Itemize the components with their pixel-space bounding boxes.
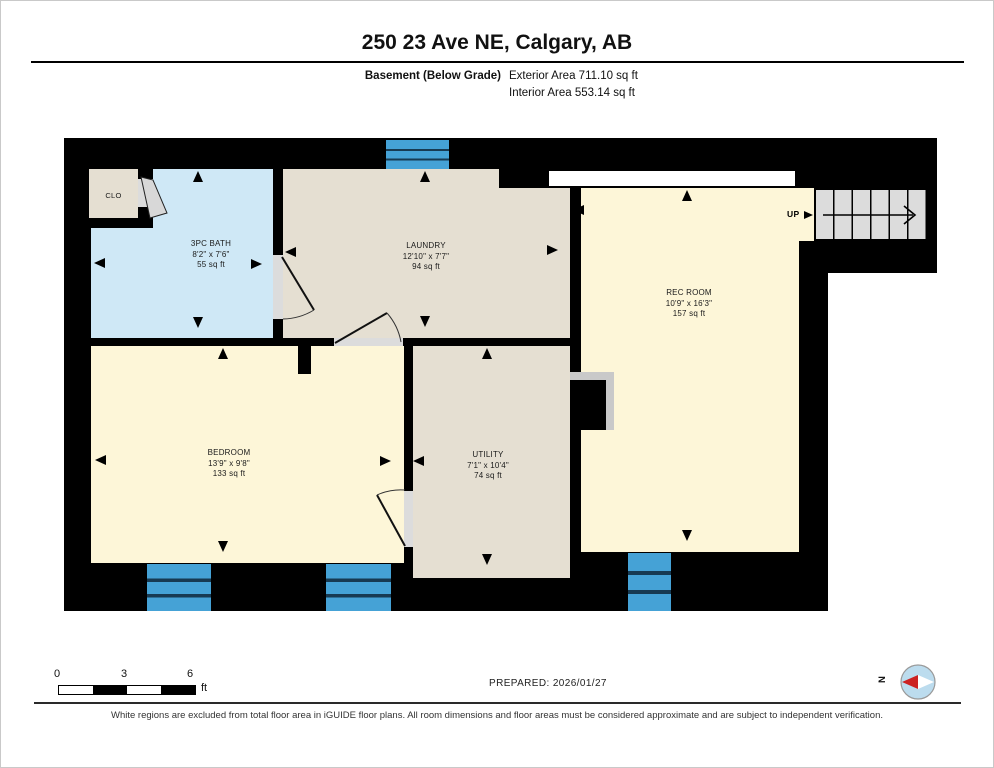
room-dims: 10'9" x 16'3": [629, 299, 749, 310]
dimension-arrow: [94, 258, 105, 268]
prepared-date: PREPARED: 2026/01/27: [489, 678, 607, 689]
room-area: 74 sq ft: [428, 471, 548, 482]
footer-disclaimer: White regions are excluded from total fl…: [1, 710, 993, 721]
scale-segment: [161, 686, 195, 694]
room-rec-upper: [581, 188, 814, 241]
chimney: [570, 380, 606, 430]
dimension-arrow: [682, 190, 692, 201]
dimension-arrow: [413, 456, 424, 466]
room-dims: 8'2" x 7'6": [151, 250, 271, 261]
dimension-arrow: [380, 456, 391, 466]
room-area: 157 sq ft: [629, 309, 749, 320]
dimension-arrow: [95, 455, 106, 465]
dimension-arrow: [218, 348, 228, 359]
room-dims: 7'1" x 10'4": [428, 461, 548, 472]
dimension-arrow: [682, 530, 692, 541]
room-name: REC ROOM: [629, 288, 749, 299]
door-gap-closet: [138, 179, 153, 207]
dimension-arrow: [193, 317, 203, 328]
scale-bar: [58, 685, 196, 695]
dimension-arrow: [573, 205, 584, 215]
laundry-wall-step: [499, 169, 547, 188]
room-name: BEDROOM: [169, 448, 289, 459]
compass-north-label: N: [877, 676, 888, 683]
scale-unit: ft: [201, 682, 207, 694]
dimension-arrow: [420, 171, 430, 182]
floorplan-page: 250 23 Ave NE, Calgary, AB Basement (Bel…: [0, 0, 994, 768]
room-dims: 13'9" x 9'8": [169, 459, 289, 470]
window: [628, 553, 671, 611]
excluded-white-region: [547, 169, 797, 188]
dimension-arrow: [420, 316, 430, 327]
door-gap-bath: [273, 255, 283, 319]
dimension-arrow: [482, 348, 492, 359]
window: [326, 564, 391, 611]
room-area: 94 sq ft: [366, 262, 486, 273]
scale-tick-6: 6: [187, 668, 193, 680]
scale-segment: [59, 686, 93, 694]
scale-segment: [93, 686, 127, 694]
window: [386, 140, 449, 169]
room-area: 133 sq ft: [169, 469, 289, 480]
room-label-rec-room: REC ROOM 10'9" x 16'3" 157 sq ft: [629, 288, 749, 320]
room-bath-upper: [153, 169, 273, 228]
dimension-arrow: [193, 171, 203, 182]
footer-divider: [34, 702, 961, 704]
dimension-arrow: [285, 247, 296, 257]
dimension-arrow: [547, 245, 558, 255]
stairs-up-label: UP: [787, 209, 799, 219]
room-area: 55 sq ft: [151, 260, 271, 271]
window: [147, 564, 211, 611]
bedroom-wall-stub: [298, 346, 311, 374]
room-name: UTILITY: [428, 450, 548, 461]
room-label-closet: CLO: [89, 191, 138, 200]
room-label-utility: UTILITY 7'1" x 10'4" 74 sq ft: [428, 450, 548, 482]
door-gap-bedroom: [404, 491, 413, 547]
room-dims: 12'10" x 7'7": [366, 252, 486, 263]
room-name: LAUNDRY: [366, 241, 486, 252]
room-label-bedroom: BEDROOM 13'9" x 9'8" 133 sq ft: [169, 448, 289, 480]
dimension-arrow: [482, 554, 492, 565]
scale-segment: [127, 686, 161, 694]
room-label-bath: 3PC BATH 8'2" x 7'6" 55 sq ft: [151, 239, 271, 271]
door-gap-laundry: [334, 338, 403, 346]
floor-plan: CLO 3PC BATH 8'2" x 7'6" 55 sq ft LAUNDR…: [1, 1, 994, 768]
room-label-laundry: LAUNDRY 12'10" x 7'7" 94 sq ft: [366, 241, 486, 273]
room-name: 3PC BATH: [151, 239, 271, 250]
staircase: [814, 188, 928, 241]
scale-tick-3: 3: [121, 668, 127, 680]
compass-icon: [899, 663, 937, 701]
dimension-arrow: [218, 541, 228, 552]
scale-tick-0: 0: [54, 668, 60, 680]
